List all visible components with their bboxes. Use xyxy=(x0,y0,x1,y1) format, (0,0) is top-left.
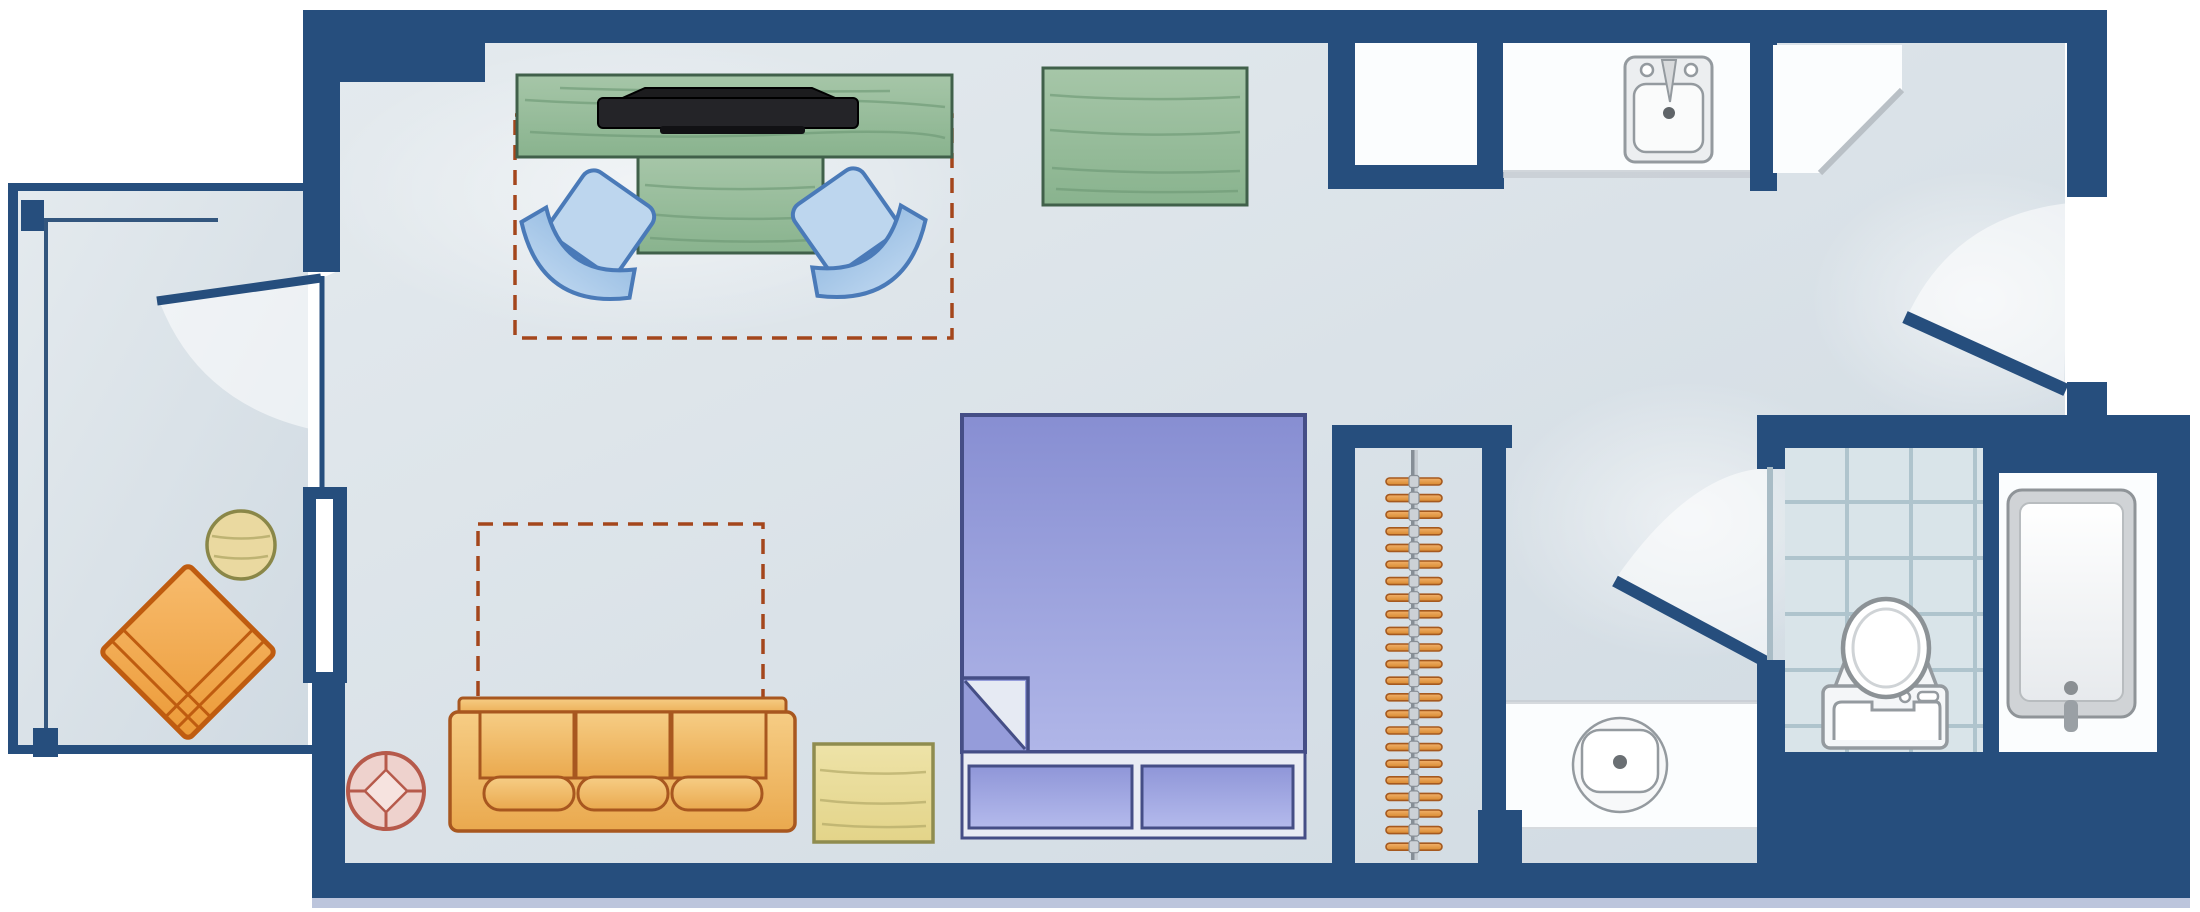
kitchen-drain xyxy=(1663,107,1675,119)
balcony-slider-glass xyxy=(316,499,333,672)
wall-niche xyxy=(1355,43,1477,165)
floor-plan-canvas xyxy=(0,0,2200,912)
hanger-clip xyxy=(1409,808,1419,820)
hanger-clip xyxy=(1409,791,1419,803)
balcony-post-top xyxy=(21,200,44,231)
hanger-clip xyxy=(1409,675,1419,687)
closet-wall-top xyxy=(1332,425,1512,448)
wall-right-mid xyxy=(2067,382,2107,418)
vanity-sink xyxy=(1573,718,1667,812)
kitchen-sink xyxy=(1625,57,1712,162)
tub-faucet xyxy=(2064,700,2078,732)
hanger-clip xyxy=(1409,525,1419,537)
wall-bath-right xyxy=(2157,430,2190,900)
wall-left-lower xyxy=(312,682,345,867)
hanger-clip xyxy=(1409,608,1419,620)
hanger-clip xyxy=(1409,492,1419,504)
hanger-clip xyxy=(1409,642,1419,654)
bed-bench-cushion-right xyxy=(1142,766,1293,828)
hanger-clip xyxy=(1409,542,1419,554)
closet-wall-foot xyxy=(1478,810,1522,863)
bed-bench-cushion-left xyxy=(969,766,1132,828)
closet-wall-left xyxy=(1332,425,1355,863)
hanger-clip xyxy=(1409,758,1419,770)
hanger-clip xyxy=(1409,625,1419,637)
wall-bath-bottom xyxy=(1757,752,2190,900)
hanger-clip xyxy=(1409,559,1419,571)
hanger-clip xyxy=(1409,725,1419,737)
bottom-accent-strip xyxy=(312,898,2190,908)
hanger-clip xyxy=(1409,691,1419,703)
bath-door-stub-bottom xyxy=(1757,660,1785,755)
bath-door-stub-top xyxy=(1757,415,1785,469)
wall-top xyxy=(485,10,2107,43)
floor-plan-svg xyxy=(0,0,2200,912)
hanger-clip xyxy=(1409,509,1419,521)
tub-drain xyxy=(2064,681,2078,695)
hanger-clip xyxy=(1409,592,1419,604)
bathtub xyxy=(2008,490,2135,732)
hanger-clip xyxy=(1409,476,1419,488)
hanger-clip xyxy=(1409,841,1419,853)
bed xyxy=(962,415,1305,838)
wall-bottom xyxy=(312,863,1790,900)
wall-bath-top xyxy=(1757,415,2190,448)
dresser xyxy=(1043,68,1247,205)
hanger-clip xyxy=(1409,824,1419,836)
hanger-clip xyxy=(1409,575,1419,587)
bath-door-jamb xyxy=(1767,467,1773,663)
hanger-clip xyxy=(1409,708,1419,720)
sofa xyxy=(450,698,795,831)
vanity-drain xyxy=(1613,755,1627,769)
side-table-round xyxy=(348,753,424,829)
balcony-table xyxy=(207,511,275,579)
hanger-clip xyxy=(1409,658,1419,670)
closet-hangers xyxy=(1386,476,1442,853)
hanger-clip xyxy=(1409,741,1419,753)
wall-right-upper xyxy=(2067,10,2107,197)
vanity xyxy=(1503,700,1760,828)
balcony-post-bottom xyxy=(33,728,58,757)
tv xyxy=(598,88,858,134)
toilet-seat xyxy=(1843,599,1929,697)
closet-wall-right xyxy=(1482,448,1506,814)
wall-tubroom-top xyxy=(1983,448,2157,473)
wall-left-upper xyxy=(303,10,340,272)
niche-bottom xyxy=(1328,165,1504,189)
kitchen-pillar xyxy=(1750,43,1777,191)
coffee-table xyxy=(814,744,933,842)
balcony-rail-top xyxy=(8,183,305,191)
balcony xyxy=(8,183,320,757)
bed-sheet-fold xyxy=(962,678,1028,752)
hanger-clip xyxy=(1409,774,1419,786)
balcony-rail-left xyxy=(8,183,18,753)
wall-tubroom-left xyxy=(1983,448,1999,752)
